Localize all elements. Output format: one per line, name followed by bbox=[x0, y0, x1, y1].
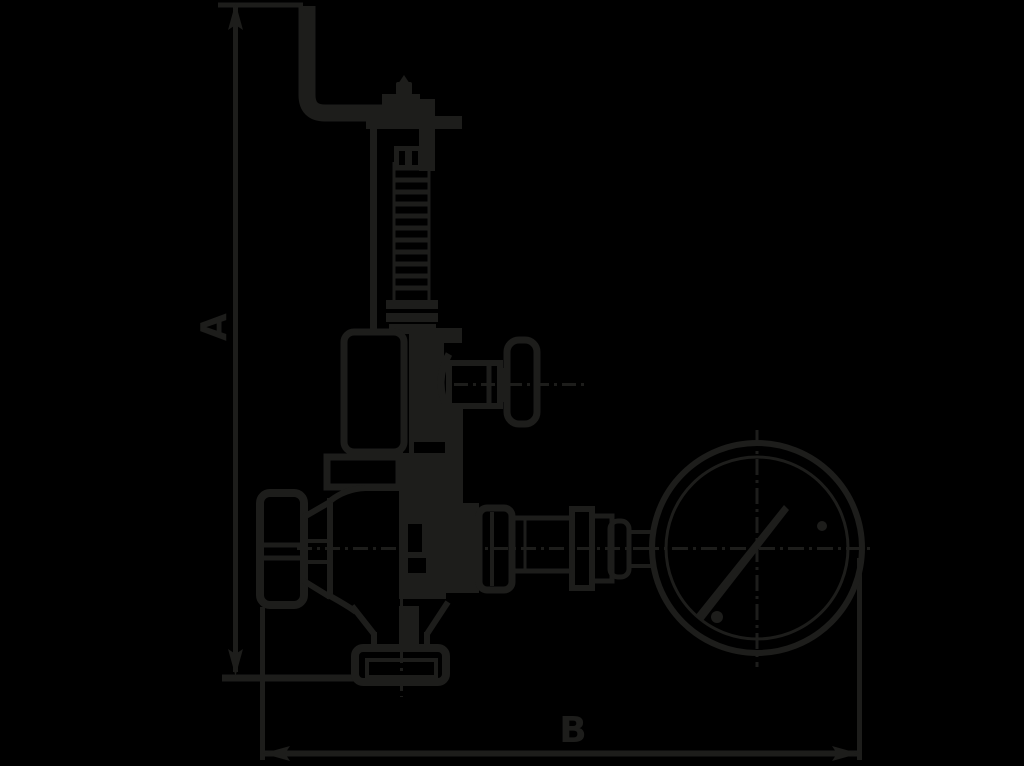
pressure-gauge bbox=[643, 430, 875, 667]
sidevalve-handwheel bbox=[507, 340, 537, 424]
outlet-block bbox=[443, 503, 479, 593]
body-right-block bbox=[399, 487, 446, 599]
gauge-screw-upper bbox=[817, 521, 827, 531]
spring-column bbox=[386, 162, 438, 334]
body-detail-void-2 bbox=[408, 558, 426, 573]
housing-outline bbox=[344, 332, 404, 452]
spring-coils bbox=[395, 168, 428, 288]
diagram-canvas: A B bbox=[0, 0, 1024, 766]
cap-block bbox=[382, 94, 420, 107]
spindle-slot-left bbox=[399, 151, 405, 165]
spindle-slot-right bbox=[412, 151, 418, 165]
gauge-needle bbox=[695, 505, 789, 622]
bonnet-flange-outline bbox=[327, 457, 399, 487]
cap-flange bbox=[366, 116, 462, 129]
dim-b-label: B bbox=[559, 710, 586, 751]
gauge-fittings bbox=[443, 503, 652, 593]
lever-pull-rod bbox=[370, 128, 377, 334]
dimension-a: A bbox=[194, 3, 358, 678]
pipe-section bbox=[512, 518, 572, 571]
inlet-stem bbox=[399, 606, 419, 650]
handwheel-hub bbox=[264, 545, 300, 558]
spring-seat-1 bbox=[386, 300, 438, 309]
valve-drawing: A B bbox=[0, 0, 1024, 766]
spring-seat-2 bbox=[386, 313, 438, 322]
gauge-screw-lower bbox=[711, 611, 723, 623]
dim-a-label: A bbox=[194, 313, 235, 341]
cap-pin bbox=[396, 82, 412, 95]
body-detail-void-1 bbox=[408, 524, 422, 552]
